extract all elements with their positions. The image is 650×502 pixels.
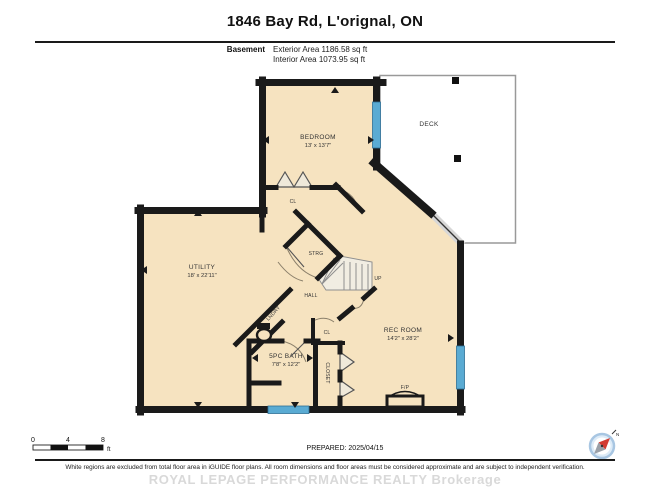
scale-tick-8: 8 <box>101 437 105 444</box>
label-up: UP <box>374 276 382 282</box>
window-bedroom <box>373 102 381 148</box>
label-deck: DECK <box>419 121 439 128</box>
dim-bedroom: 13' x 13'7" <box>305 143 332 149</box>
disclaimer-text: White regions are excluded from total fl… <box>0 464 650 471</box>
label-fp: F/P <box>401 385 410 391</box>
deck-post <box>454 155 461 162</box>
window-recroom <box>457 346 465 389</box>
dim-utility: 18' x 22'11" <box>187 273 216 279</box>
brokerage-watermark: ROYAL LEPAGE PERFORMANCE REALTY Brokerag… <box>0 472 650 487</box>
label-bedroom: BEDROOM <box>300 134 336 141</box>
scale-tick-4: 4 <box>66 437 70 444</box>
toilet <box>257 323 271 341</box>
label-hall: HALL <box>304 293 317 299</box>
prepared-date: PREPARED: 2025/04/15 <box>307 445 384 452</box>
label-recroom: REC ROOM <box>384 327 422 334</box>
dim-recroom: 14'2" x 28'2" <box>387 336 419 342</box>
label-closet: CLOSET <box>324 362 330 383</box>
floorplan-canvas: BEDROOM 13' x 13'7" CL DECK UTILITY 18' … <box>0 0 650 502</box>
window-bath <box>268 406 309 414</box>
floorplan-page: 1846 Bay Rd, L'orignal, ON Basement Exte… <box>0 0 650 502</box>
scale-unit: ft <box>107 446 111 453</box>
label-strg: STRG <box>309 251 324 257</box>
compass-north-label: N <box>616 432 619 437</box>
label-utility: UTILITY <box>189 264 216 271</box>
label-cl-bedroom: CL <box>290 199 297 205</box>
label-bath: 5PC BATH <box>269 353 303 360</box>
footer-divider <box>35 459 615 461</box>
scale-tick-0: 0 <box>31 437 35 444</box>
compass-icon: N <box>590 430 619 458</box>
scale-bar: 0 4 8 ft <box>31 437 111 453</box>
deck-post <box>452 77 459 84</box>
label-cl-hall: CL <box>324 330 331 336</box>
dim-bath: 7'8" x 12'2" <box>272 362 301 368</box>
